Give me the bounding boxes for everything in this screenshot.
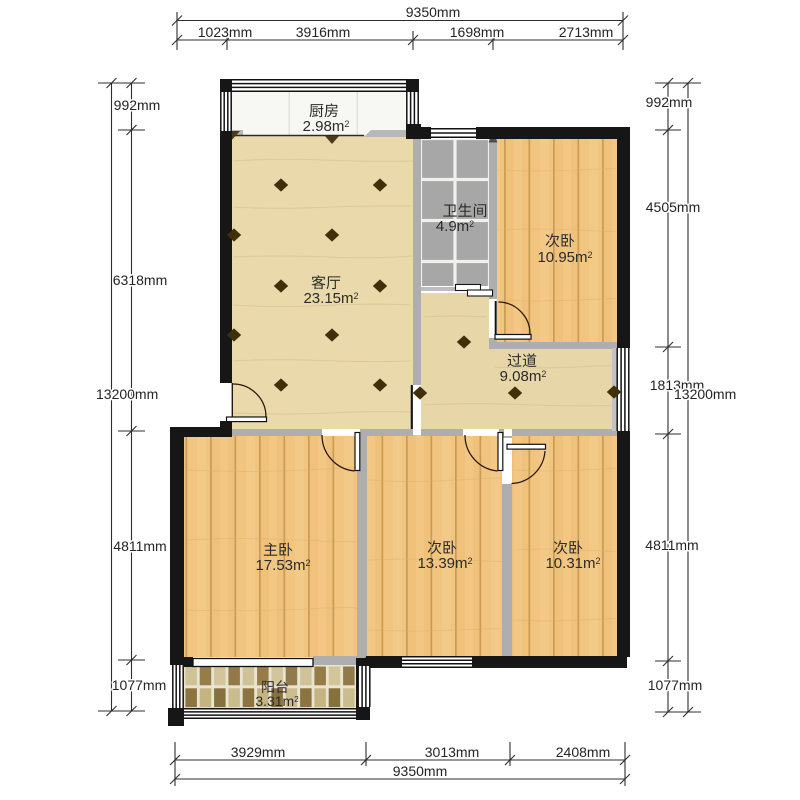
svg-text:992mm: 992mm bbox=[114, 97, 161, 113]
svg-text:13.39m2: 13.39m2 bbox=[417, 555, 472, 572]
svg-text:992mm: 992mm bbox=[646, 94, 693, 110]
svg-text:3.31m2: 3.31m2 bbox=[255, 693, 299, 709]
svg-text:10.31m2: 10.31m2 bbox=[545, 555, 600, 572]
svg-text:4811mm: 4811mm bbox=[113, 538, 166, 554]
svg-text:1023mm: 1023mm bbox=[198, 24, 252, 40]
svg-text:10.95m2: 10.95m2 bbox=[537, 249, 592, 266]
svg-text:2713mm: 2713mm bbox=[559, 24, 613, 40]
svg-text:2.98m2: 2.98m2 bbox=[303, 118, 350, 135]
svg-text:4505mm: 4505mm bbox=[646, 199, 700, 215]
svg-text:13200mm: 13200mm bbox=[96, 386, 158, 402]
svg-text:6318mm: 6318mm bbox=[113, 272, 167, 288]
svg-text:17.53m2: 17.53m2 bbox=[255, 557, 310, 574]
svg-text:1077mm: 1077mm bbox=[112, 677, 166, 693]
svg-text:9350mm: 9350mm bbox=[406, 4, 460, 20]
svg-text:9350mm: 9350mm bbox=[393, 763, 447, 779]
svg-text:1698mm: 1698mm bbox=[450, 24, 504, 40]
svg-text:2408mm: 2408mm bbox=[556, 744, 610, 760]
svg-text:13200mm: 13200mm bbox=[674, 386, 736, 402]
svg-text:4811mm: 4811mm bbox=[645, 537, 698, 553]
svg-text:1077mm: 1077mm bbox=[648, 677, 702, 693]
svg-text:9.08m2: 9.08m2 bbox=[500, 368, 547, 385]
svg-text:4.9m2: 4.9m2 bbox=[436, 218, 474, 235]
svg-text:3916mm: 3916mm bbox=[296, 24, 350, 40]
svg-text:3929mm: 3929mm bbox=[231, 744, 285, 760]
svg-text:23.15m2: 23.15m2 bbox=[303, 290, 358, 307]
svg-text:3013mm: 3013mm bbox=[425, 744, 479, 760]
